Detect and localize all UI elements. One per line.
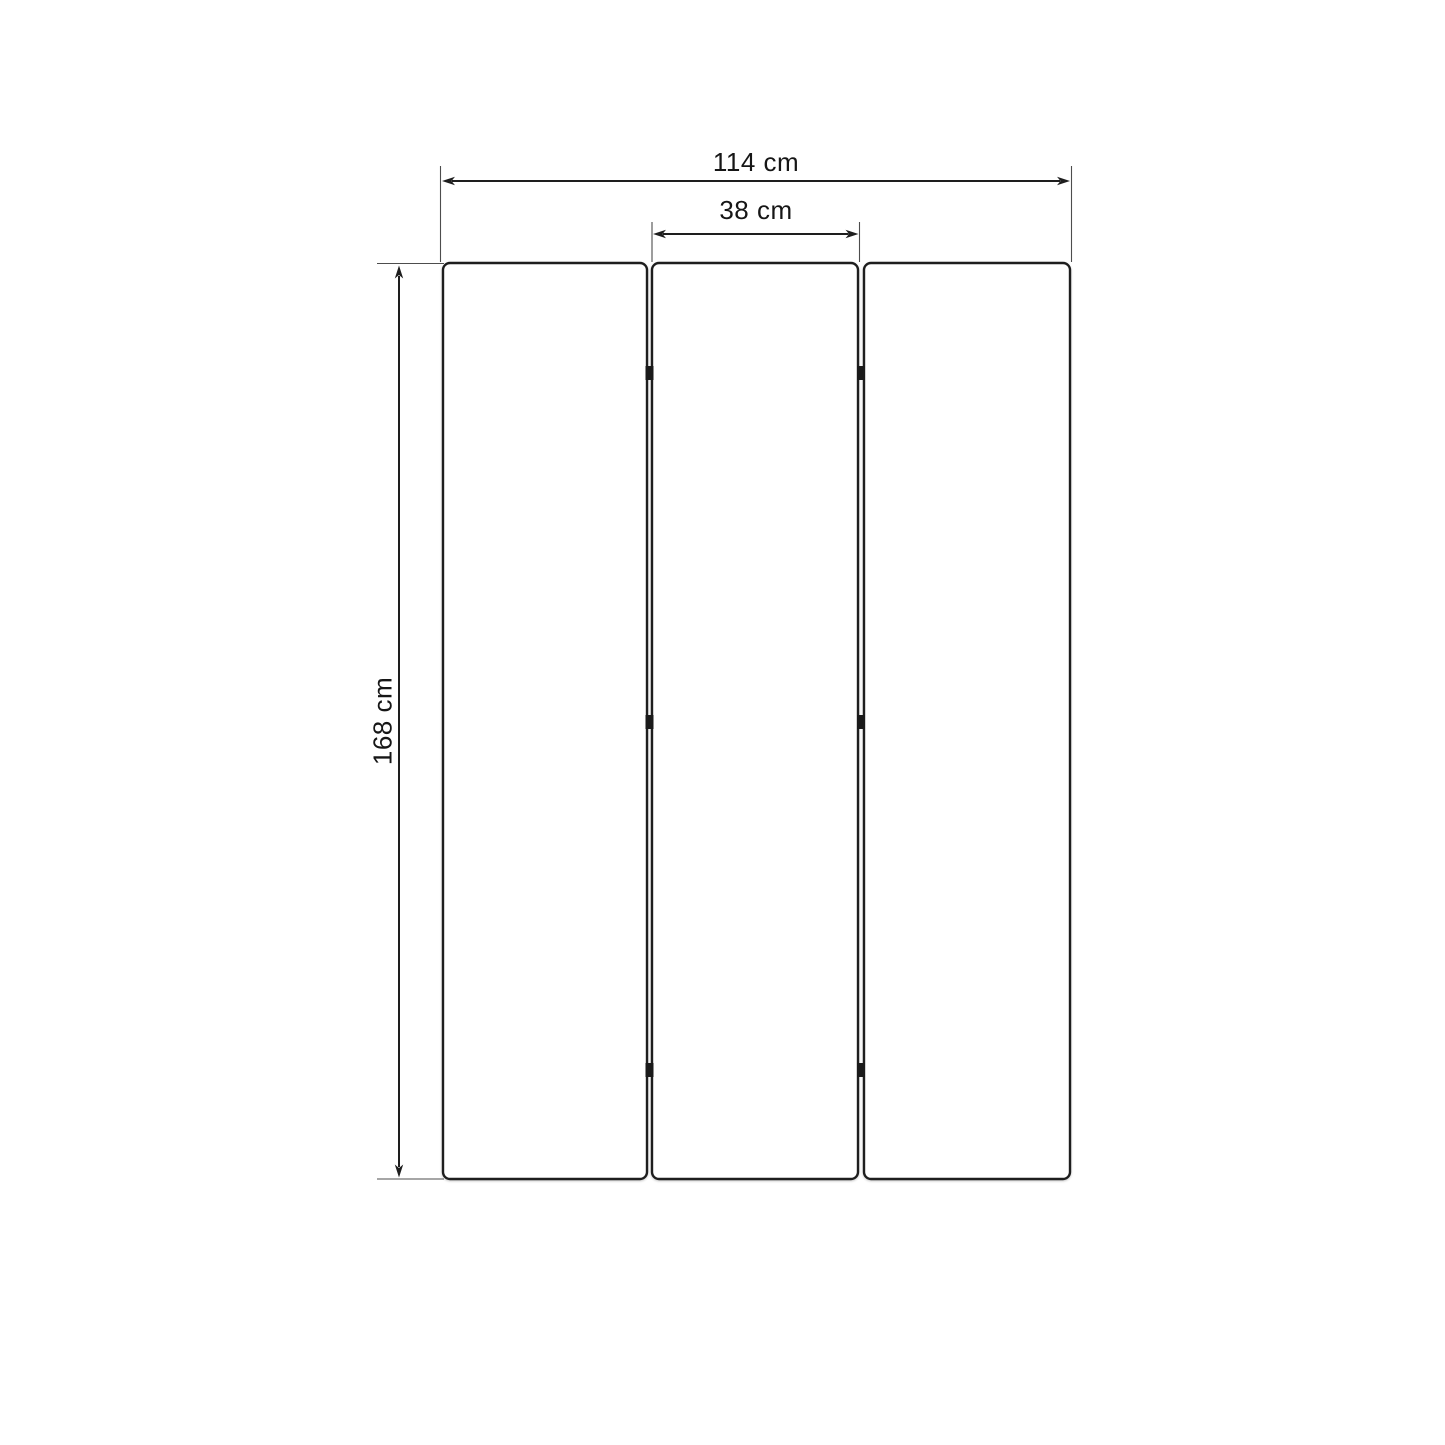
panel-width-label: 38 cm	[719, 195, 792, 225]
panel-middle	[652, 263, 858, 1179]
hinge	[857, 366, 865, 380]
hinge	[857, 715, 865, 729]
panel-left	[443, 263, 647, 1179]
hinge	[646, 1063, 654, 1077]
hinge	[646, 366, 654, 380]
panel-right	[864, 263, 1070, 1179]
hinge	[646, 715, 654, 729]
panels-group	[443, 263, 1070, 1179]
height-dimension: 168 cm	[368, 264, 445, 1180]
diagram-canvas: 114 cm 38 cm 168 cm	[0, 0, 1445, 1445]
dimension-diagram: 114 cm 38 cm 168 cm	[0, 0, 1445, 1445]
panel-width-dimension: 38 cm	[652, 195, 860, 262]
hinge	[857, 1063, 865, 1077]
total-width-label: 114 cm	[713, 147, 799, 177]
height-label: 168 cm	[368, 677, 398, 765]
